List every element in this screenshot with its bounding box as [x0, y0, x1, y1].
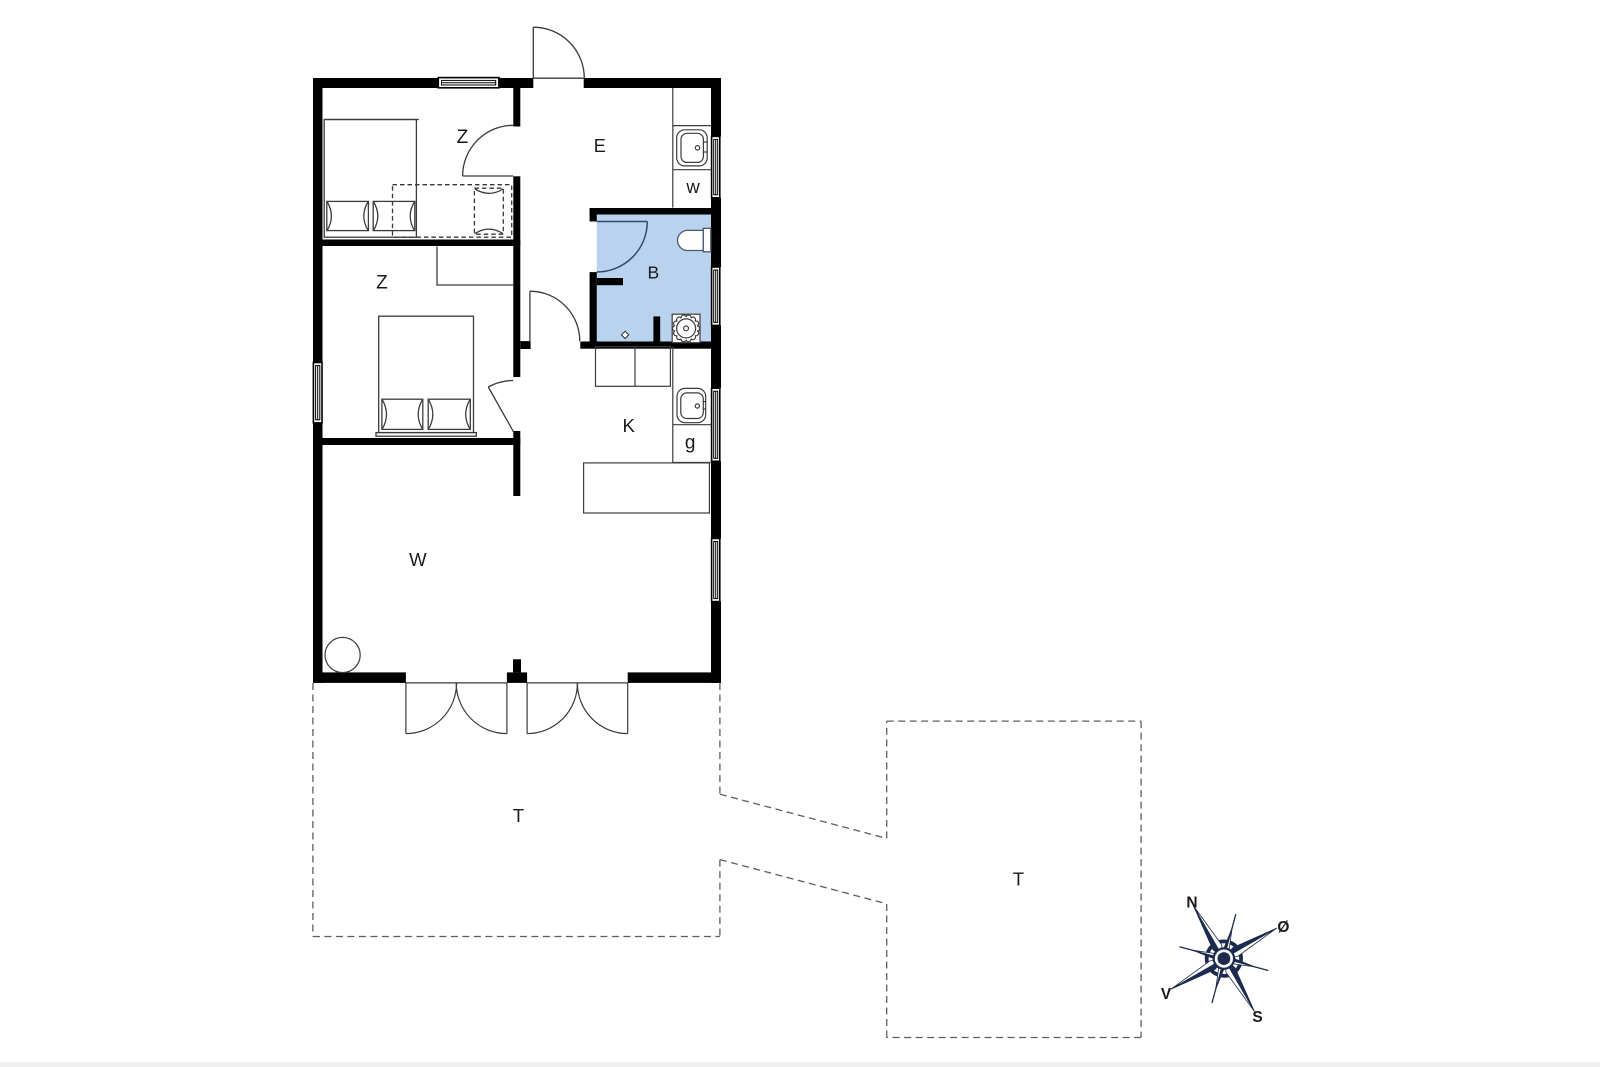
svg-text:T: T: [513, 805, 524, 826]
svg-text:B: B: [648, 263, 660, 283]
svg-text:Z: Z: [376, 273, 388, 294]
svg-text:T: T: [1013, 869, 1024, 890]
svg-text:g: g: [685, 433, 696, 454]
svg-text:W: W: [409, 549, 427, 570]
svg-text:V: V: [1161, 986, 1172, 1003]
svg-text:Z: Z: [457, 127, 469, 148]
svg-text:S: S: [1252, 1009, 1262, 1026]
svg-text:E: E: [594, 136, 606, 156]
svg-text:w: w: [685, 176, 700, 197]
svg-text:N: N: [1186, 895, 1197, 912]
svg-text:Ø: Ø: [1277, 919, 1289, 936]
svg-text:K: K: [622, 415, 635, 436]
